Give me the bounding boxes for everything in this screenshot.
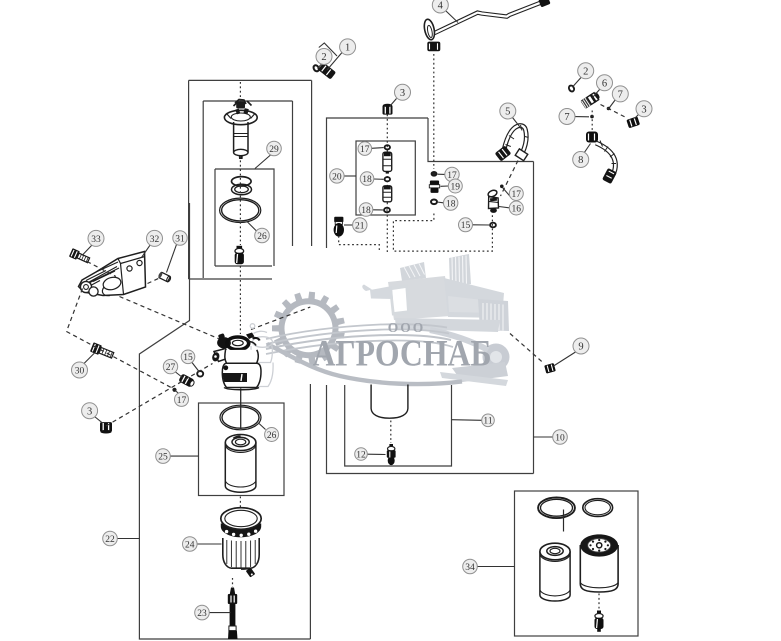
svg-text:7: 7: [618, 90, 623, 101]
svg-text:33: 33: [91, 235, 101, 245]
svg-text:23: 23: [197, 609, 207, 619]
svg-text:18: 18: [446, 199, 456, 209]
svg-text:3: 3: [87, 406, 92, 417]
svg-text:30: 30: [75, 366, 85, 376]
svg-text:2: 2: [583, 66, 588, 77]
svg-text:24: 24: [185, 540, 195, 550]
svg-text:5: 5: [505, 107, 510, 118]
svg-text:17: 17: [177, 396, 187, 406]
svg-text:20: 20: [332, 172, 342, 182]
svg-text:16: 16: [512, 204, 522, 214]
svg-text:8: 8: [578, 155, 583, 166]
svg-text:АГРОСНАБ: АГРОСНАБ: [313, 334, 492, 375]
svg-text:25: 25: [158, 453, 168, 463]
svg-text:26: 26: [257, 232, 267, 242]
svg-text:18: 18: [361, 206, 371, 216]
svg-text:7: 7: [564, 112, 569, 123]
svg-text:3: 3: [400, 88, 405, 99]
svg-text:15: 15: [183, 353, 193, 363]
svg-text:19: 19: [451, 182, 461, 192]
svg-text:26: 26: [267, 431, 277, 441]
svg-text:3: 3: [641, 104, 646, 115]
svg-text:9: 9: [578, 342, 583, 353]
svg-text:2: 2: [321, 52, 326, 63]
svg-text:4: 4: [438, 1, 444, 12]
svg-text:22: 22: [105, 535, 115, 545]
svg-text:11: 11: [483, 417, 492, 427]
svg-text:32: 32: [150, 235, 160, 245]
svg-text:17: 17: [512, 190, 522, 200]
svg-text:31: 31: [175, 234, 185, 244]
svg-text:34: 34: [465, 563, 475, 573]
svg-text:21: 21: [355, 221, 365, 231]
svg-text:29: 29: [269, 145, 279, 155]
svg-text:15: 15: [461, 221, 471, 231]
svg-text:10: 10: [555, 433, 565, 443]
svg-text:17: 17: [360, 145, 370, 155]
svg-text:27: 27: [166, 363, 176, 373]
svg-text:1: 1: [345, 43, 350, 54]
svg-text:18: 18: [362, 175, 372, 185]
svg-text:6: 6: [602, 78, 607, 89]
svg-text:12: 12: [356, 450, 366, 460]
